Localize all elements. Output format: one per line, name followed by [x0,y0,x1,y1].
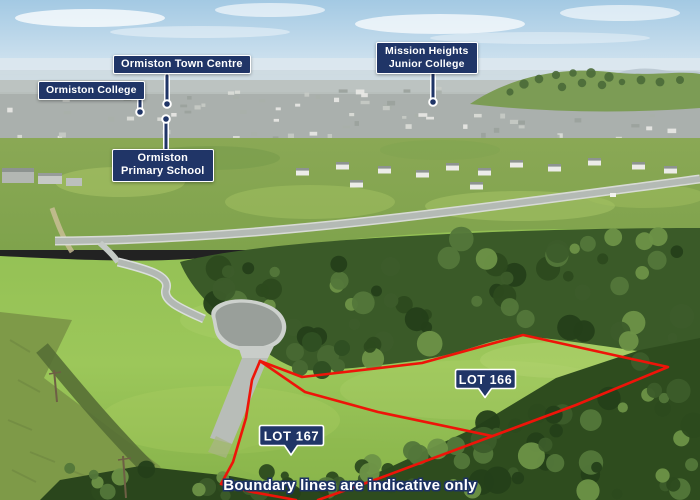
aerial-photo-stage: Ormiston Town Centre Ormiston College Mi… [0,0,700,500]
lot-167-text: LOT 167 [264,429,320,444]
label-mission-heights-junior-college: Mission Heights Junior College [376,42,478,74]
label-line-1: Ormiston [121,152,205,165]
town-centre-dot-marker [163,100,171,108]
culdesac-apron [238,346,274,358]
label-line-2: Primary School [121,165,205,178]
lot-167-tag: LOT 167 [256,423,332,463]
primary-dot-marker [162,115,170,123]
label-ormiston-town-centre: Ormiston Town Centre [113,55,251,74]
boundary-disclaimer-text: Boundary lines are indicative only [223,477,477,494]
label-ormiston-college: Ormiston College [38,81,145,100]
college-dot-marker [136,108,144,116]
lot-166-text: LOT 166 [459,373,513,387]
aerial-scene [0,0,700,500]
lot-166-tag: LOT 166 [452,367,522,405]
label-line-2: Junior College [385,58,469,71]
label-line-1: Mission Heights [385,45,469,58]
car-on-road [610,193,616,197]
label-ormiston-primary-school: Ormiston Primary School [112,149,214,182]
mission-heights-dot-marker [429,98,437,106]
